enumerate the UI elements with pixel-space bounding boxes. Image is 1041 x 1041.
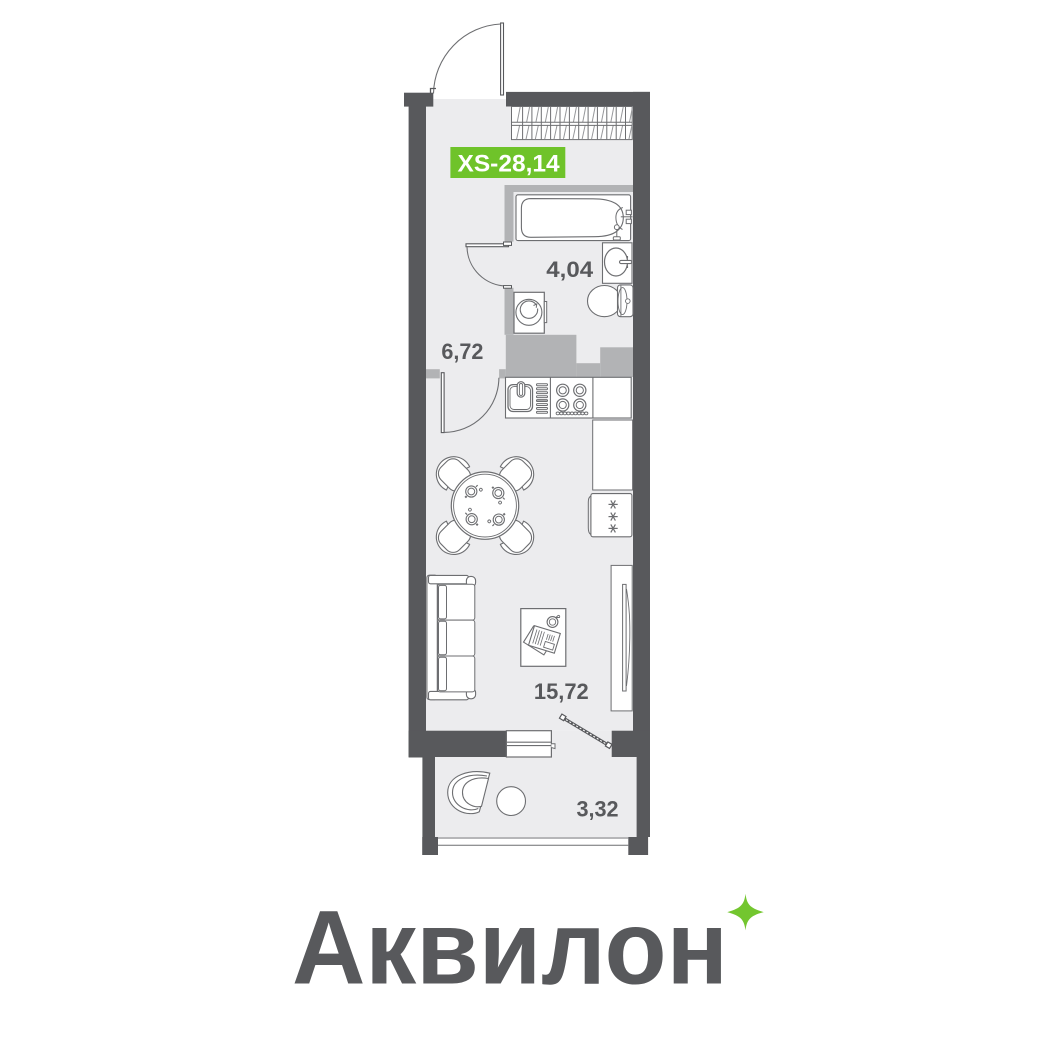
svg-text:XS-28,14: XS-28,14	[458, 151, 561, 178]
svg-text:Аквилон: Аквилон	[292, 890, 728, 1007]
svg-text:15,72: 15,72	[534, 679, 589, 704]
svg-text:4,04: 4,04	[546, 257, 593, 282]
svg-text:6,72: 6,72	[441, 339, 483, 364]
svg-text:3,32: 3,32	[576, 796, 618, 821]
